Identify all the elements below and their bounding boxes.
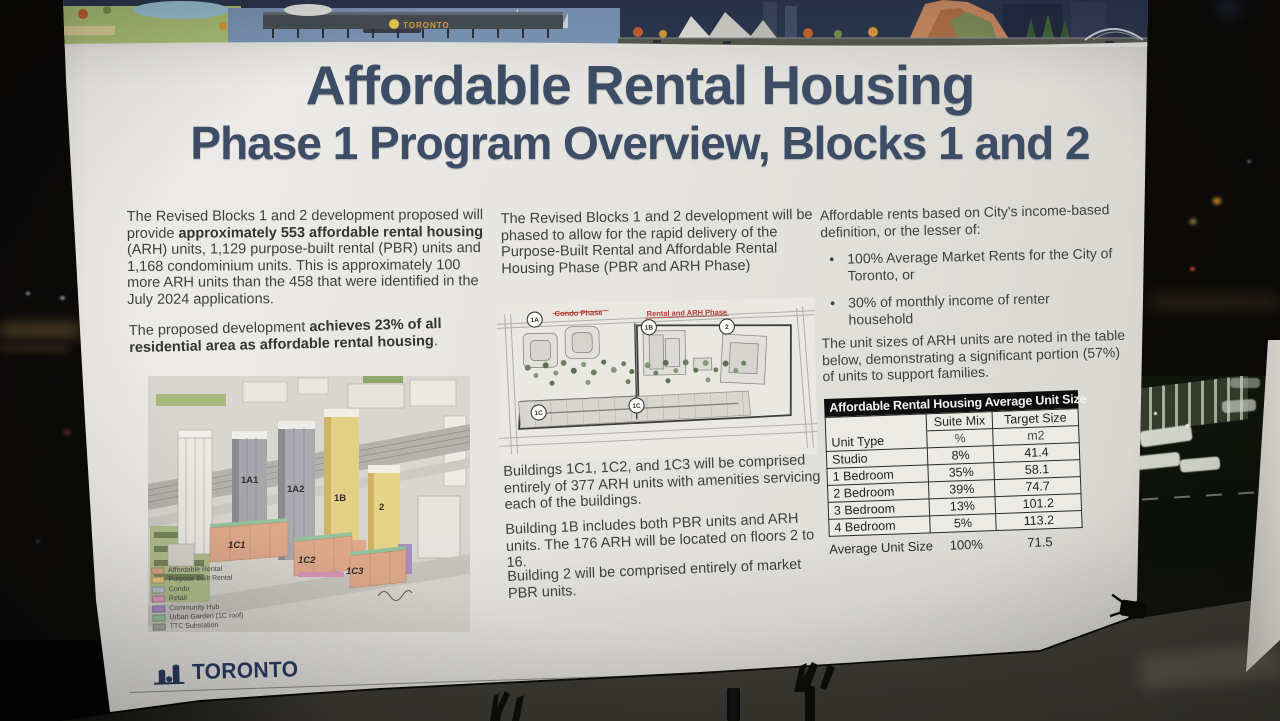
list-item: 100% Average Market Rents for the City o… [825, 245, 1118, 284]
toronto-skyline-banner: TORONTO [63, 0, 1148, 47]
parking-line [1238, 491, 1254, 494]
toronto-sign-text: TORONTO [403, 21, 450, 30]
legend-item: Urban Garden (1C roof) [152, 611, 282, 621]
list-item: 30% of monthly income of renter househol… [826, 289, 1119, 328]
legend-item: Community Hub [152, 602, 282, 612]
right-paragraph-1: Affordable rents based on City's income-… [820, 201, 1133, 241]
toronto-city-hall-icon [153, 661, 186, 686]
legend-swatch-urban-garden [152, 614, 165, 621]
window-light [1247, 160, 1251, 163]
legend-swatch-ttc-substation [153, 624, 166, 631]
street-lamp-light [1190, 219, 1196, 224]
left-paragraph-1: The Revised Blocks 1 and 2 development p… [127, 207, 496, 308]
render-label-1B: 1B [334, 493, 346, 504]
legend-swatch-affordable-rental [151, 567, 164, 574]
render-label-1A1: 1A1 [241, 475, 259, 486]
poster-title-line1: Affordable Rental Housing [120, 53, 1160, 117]
toronto-wordmark: TORONTO [192, 657, 299, 685]
street-lamp-light [1213, 198, 1221, 204]
middle-paragraph-1: The Revised Blocks 1 and 2 development w… [501, 207, 832, 278]
text-segment: . [434, 333, 438, 349]
legend-item: Retail [152, 592, 282, 602]
window-reflection-streak [0, 346, 70, 352]
blue-glow [1218, 0, 1240, 14]
plan-marker-1A: 1A [531, 317, 540, 324]
render-legend: Affordable Rental Purpose Built Rental C… [151, 564, 283, 633]
parking-line [1174, 495, 1190, 498]
render-label-1A2: 1A2 [287, 484, 304, 495]
legend-swatch-retail [152, 596, 165, 603]
cinesphere-dome [284, 4, 332, 16]
fine-print-text [1053, 640, 1127, 647]
text-segment: (ARH) units, 1,129 purpose-built rental … [127, 240, 481, 307]
window-light [64, 430, 70, 435]
plan-marker-2: 2 [725, 324, 729, 331]
banner-park [63, 1, 241, 47]
easel-post [727, 688, 740, 721]
plan-marker-1B: 1B [645, 325, 654, 332]
render-label-1C1: 1C1 [228, 540, 245, 551]
easel-clamp-right [780, 656, 844, 721]
parked-car [1135, 452, 1180, 471]
legend-swatch-condo [152, 586, 165, 593]
parking-line [1142, 497, 1158, 500]
city-of-toronto-logo: TORONTO [153, 658, 299, 686]
window-light [60, 296, 65, 300]
legend-item: Purpose Built Rental [151, 574, 281, 584]
parking-line [1206, 493, 1222, 496]
legend-item: Condo [152, 583, 282, 593]
middle-paragraph-2: Buildings 1C1, 1C2, and 1C3 will be comp… [503, 452, 827, 514]
render-label-1C3: 1C3 [346, 566, 364, 577]
easel-clamp-left [472, 682, 532, 721]
window-reflection-streak [0, 322, 80, 338]
render-label-1C2: 1C2 [298, 555, 316, 566]
parked-car [1230, 378, 1260, 388]
legend-item: TTC Substation [153, 621, 283, 631]
plan-marker-1C-left: 1C [534, 410, 543, 417]
table-footer-average: Average Unit Size 100% 71.5 [829, 533, 1083, 557]
left-paragraph-2: The proposed development achieves 23% of… [129, 315, 498, 357]
text-segment-bold: approximately 553 affordable rental hous… [178, 224, 483, 242]
window-light [36, 540, 40, 543]
unit-size-table: Affordable Rental Housing Average Unit S… [824, 390, 1083, 557]
night-photo-of-poster: TORONTO [0, 0, 1280, 721]
poster-board: TORONTO [0, 0, 1280, 721]
parked-car [1222, 399, 1257, 413]
poster-title-line2: Phase 1 Program Overview, Blocks 1 and 2 [120, 116, 1160, 170]
window-light [26, 292, 30, 295]
legend-swatch-community-hub [152, 605, 165, 612]
road-streak [1150, 295, 1280, 309]
legend-swatch-purpose-built-rental [151, 577, 164, 584]
plan-marker-1C-mid: 1C [632, 403, 641, 410]
right-paragraph-2: The unit sizes of ARH units are noted in… [821, 327, 1130, 385]
render-label-2: 2 [379, 502, 384, 513]
site-plan-figure: Condo Phase Rental and ARH Phase 1A 1B 2… [496, 298, 817, 462]
red-light [1190, 267, 1195, 271]
render-podium-1C1 [210, 518, 288, 562]
binder-clip [1110, 594, 1154, 626]
rent-criteria-list: 100% Average Market Rents for the City o… [825, 245, 1119, 339]
sun-sign [389, 19, 399, 29]
parked-car [1180, 456, 1221, 472]
